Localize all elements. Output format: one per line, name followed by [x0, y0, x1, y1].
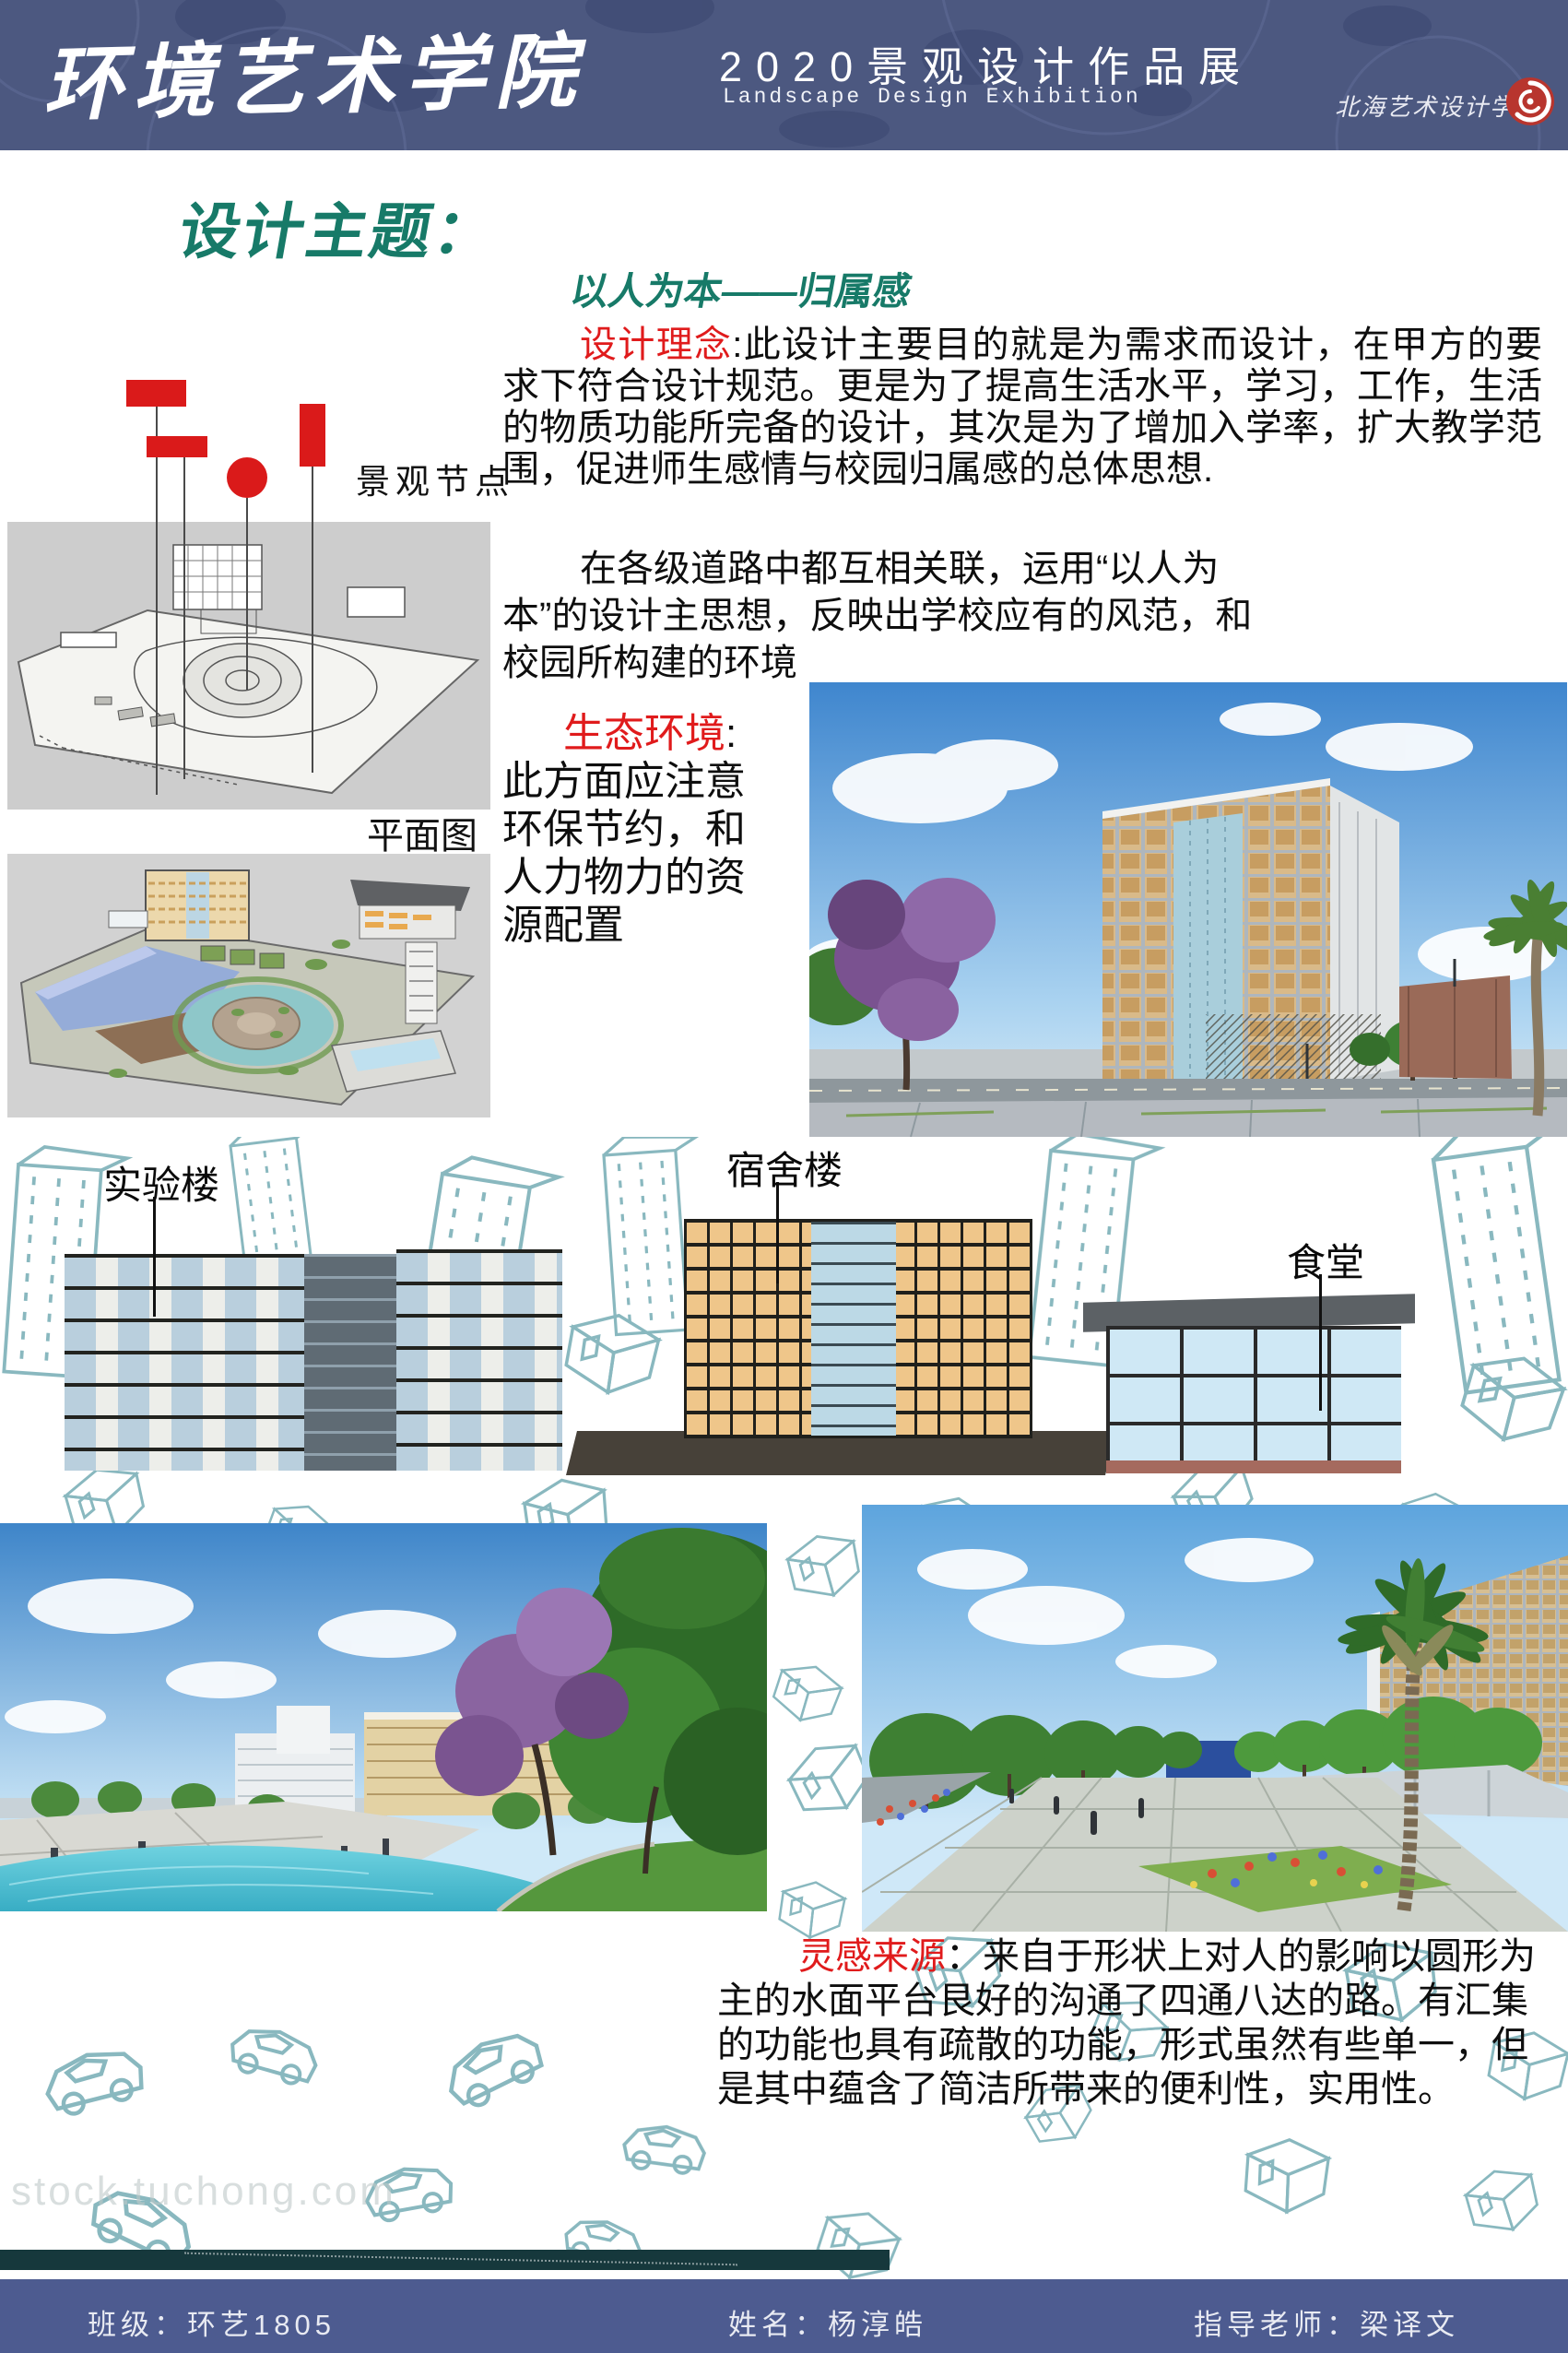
lab-building-label: 实验楼 [103, 1154, 219, 1211]
stock-watermark: stock.tuchong.com [11, 2169, 396, 2215]
plan-view-caption: 平面图 [367, 806, 477, 859]
canteen-brick-base [1106, 1460, 1401, 1473]
dorm-building-label: 宿舍楼 [726, 1140, 843, 1196]
canteen-leader-line [1319, 1274, 1322, 1411]
inspiration-label: 灵感来源 [798, 1936, 946, 1977]
wireframe-site-plan-image [7, 522, 490, 810]
ecology-label: 生态环境 [563, 711, 725, 756]
node-marker-rect [147, 436, 207, 457]
node-leader-line [246, 498, 248, 690]
divider-dotted-line [184, 2252, 737, 2266]
ecology-paragraph: 生态环境: 此方面应注意环保节约，和人力物力的资源配置 [502, 710, 784, 950]
footer-bar: 班级：环艺1805 姓名：杨淳皓 指导老师：梁译文 [0, 2279, 1568, 2353]
lab-leader-line [153, 1197, 156, 1317]
footer-class: 班级：环艺1805 [88, 2301, 336, 2343]
waterfront-plaza-render-image [0, 1523, 767, 1911]
lab-building-glass-core [304, 1254, 396, 1471]
footer-name: 姓名：杨淳皓 [728, 2301, 927, 2343]
school-title: 环境艺术学院 [41, 6, 585, 136]
swirl-logo-icon [1504, 76, 1556, 127]
header-banner: 环境艺术学院 2020景观设计作品展 Landscape Design Exhi… [0, 0, 1568, 150]
campus-building-render-image [809, 682, 1567, 1137]
lab-building-elevation [65, 1254, 304, 1471]
canteen-elevation [1106, 1326, 1401, 1460]
node-marker-dot [227, 457, 267, 498]
node-leader-line [183, 457, 185, 779]
design-theme-heading: 设计主题： [173, 183, 507, 271]
node-marker-bar [300, 404, 325, 467]
node-leader-line [312, 467, 313, 773]
lab-building-elevation [396, 1249, 562, 1471]
design-theme-subheading: 以人为本——归属感 [567, 260, 917, 315]
node-marker-rect [126, 380, 186, 407]
colored-site-plan-image [7, 854, 490, 1117]
design-concept-paragraph: 设计理念:此设计主要目的就是为需求而设计，在甲方的要求下符合设计规范。更是为了提… [502, 325, 1542, 491]
footer-advisor: 指导老师：梁译文 [1194, 2301, 1459, 2343]
dorm-building-glass-strip [811, 1222, 896, 1436]
roads-text: 在各级道路中都互相关联，运用“以人为本”的设计主思想，反映出学校应有的风范，和校… [502, 549, 1252, 683]
poster: 环境艺术学院 2020景观设计作品展 Landscape Design Exhi… [0, 0, 1568, 2353]
design-concept-label: 设计理念 [580, 325, 732, 365]
node-leader-line [156, 407, 158, 795]
inspiration-paragraph: 灵感来源：来自于形状上对人的影响以圆形为主的水面平台艮好的沟通了四通八达的路。有… [717, 1934, 1539, 2111]
boulevard-render-image [862, 1505, 1568, 1932]
canteen-label: 食堂 [1287, 1232, 1364, 1288]
roads-paragraph: 在各级道路中都互相关联，运用“以人为本”的设计主思想，反映出学校应有的风范，和校… [502, 546, 1256, 687]
dorm-leader-line [776, 1182, 779, 1283]
exhibition-subtitle: Landscape Design Exhibition [723, 85, 1141, 109]
teal-divider-bar [0, 2250, 890, 2270]
landscape-nodes-label: 景观节点 [356, 454, 514, 503]
